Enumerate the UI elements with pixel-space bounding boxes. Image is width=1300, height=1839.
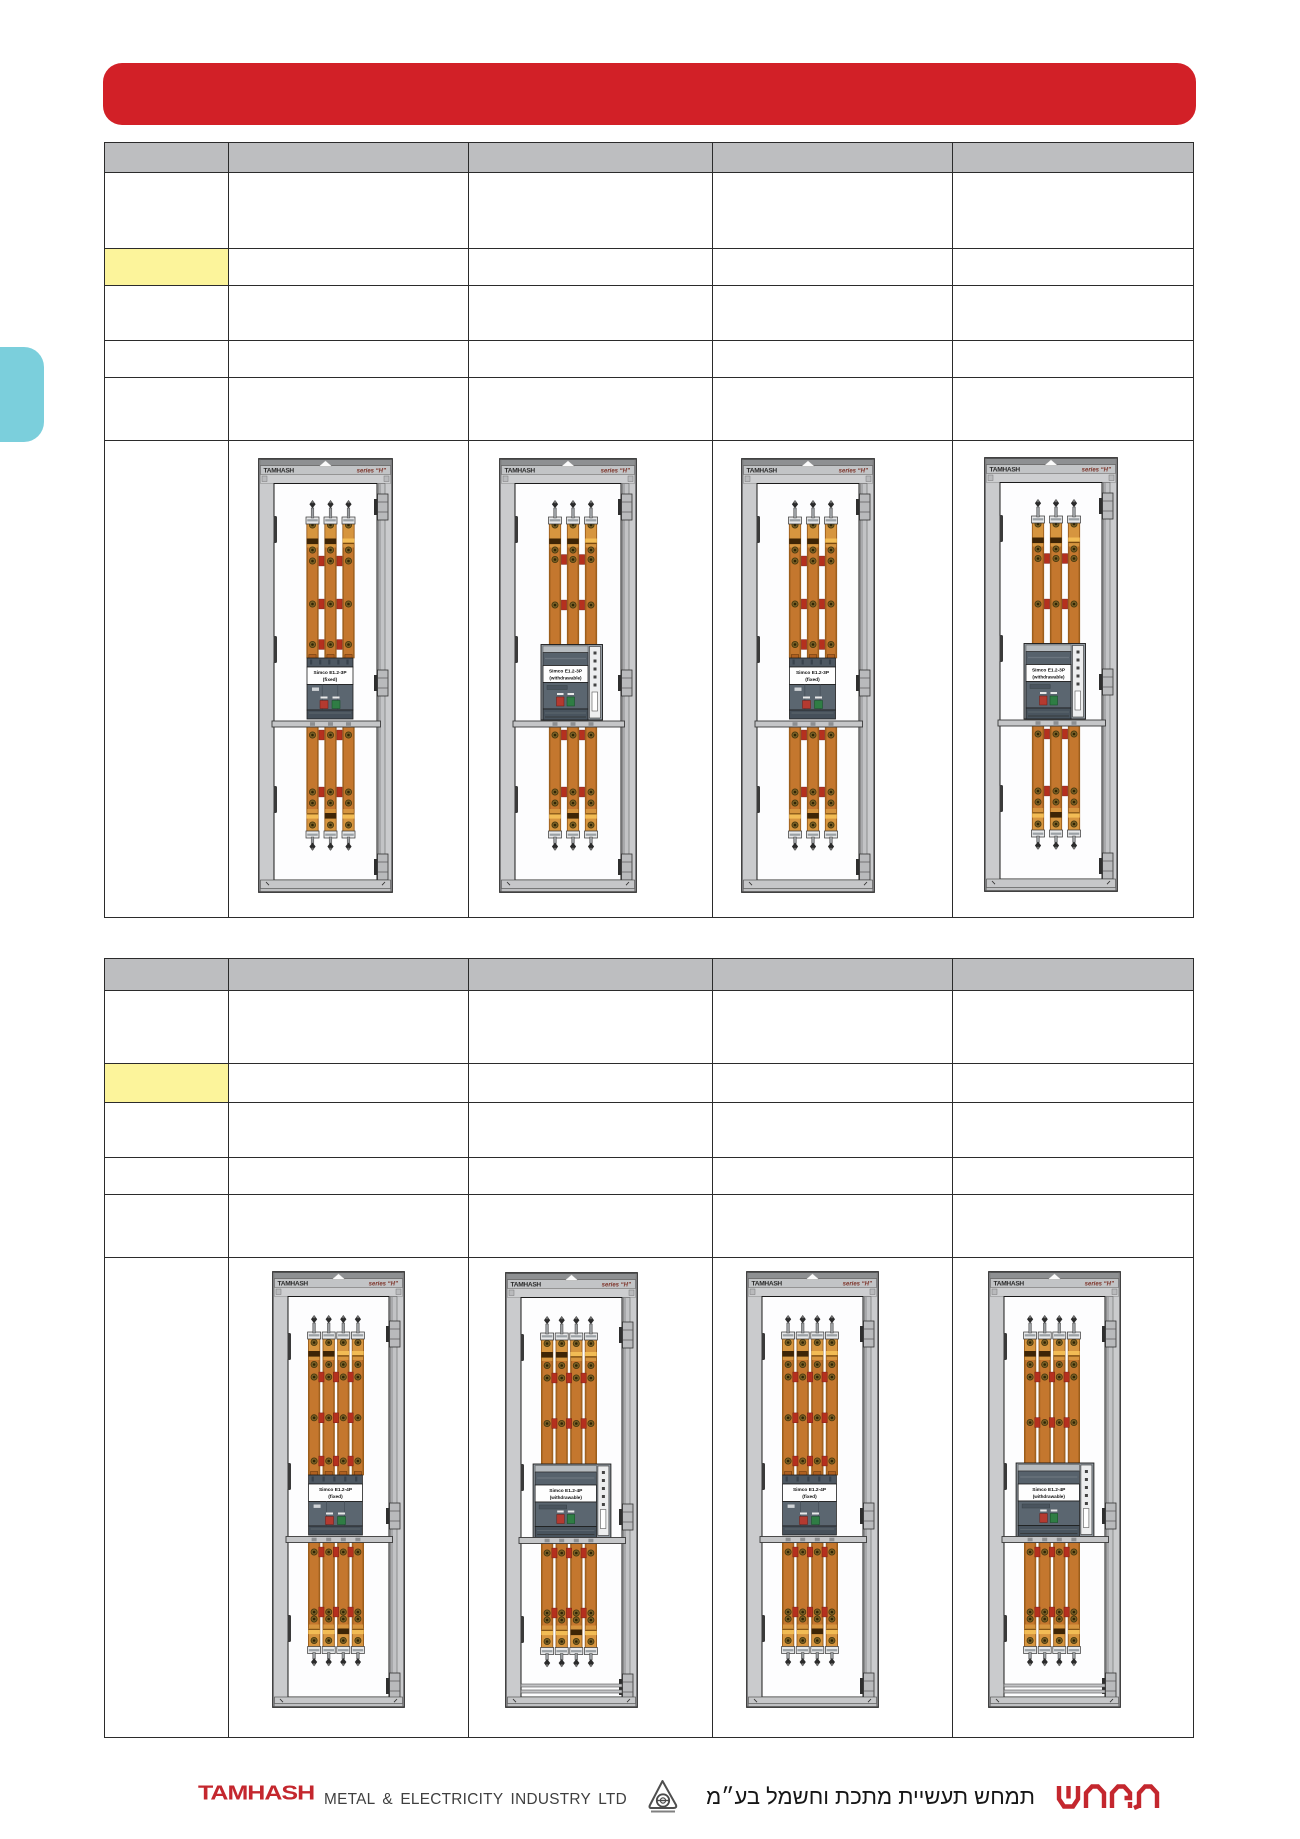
svg-text:series “H”: series “H” <box>1082 467 1111 473</box>
svg-text:(fixed): (fixed) <box>328 1494 343 1500</box>
svg-text:Simco E1.2-4P: Simco E1.2-4P <box>549 1488 583 1494</box>
svg-text:series “H”: series “H” <box>839 468 868 474</box>
svg-text:TAMHASH: TAMHASH <box>994 1281 1025 1288</box>
svg-text:TAMHASH: TAMHASH <box>747 468 778 475</box>
svg-text:Simco E1.2-3P: Simco E1.2-3P <box>313 670 347 676</box>
svg-text:Simco E1.2-3P: Simco E1.2-3P <box>549 669 583 675</box>
svg-text:(withdrawable): (withdrawable) <box>1032 674 1065 679</box>
svg-text:series “H”: series “H” <box>601 468 630 474</box>
svg-text:TAMHASH: TAMHASH <box>990 467 1021 474</box>
svg-text:series “H”: series “H” <box>1085 1281 1114 1287</box>
svg-text:TAMHASH: TAMHASH <box>511 1282 542 1289</box>
svg-text:(fixed): (fixed) <box>802 1494 817 1500</box>
svg-text:series “H”: series “H” <box>602 1282 631 1288</box>
svg-text:Simco E1.2-4P: Simco E1.2-4P <box>793 1487 827 1493</box>
svg-text:(fixed): (fixed) <box>805 677 820 683</box>
svg-text:TAMHASH: TAMHASH <box>264 468 295 475</box>
svg-text:Simco E1.2-3P: Simco E1.2-3P <box>796 670 830 676</box>
svg-text:Simco E1.2-4P: Simco E1.2-4P <box>1032 1487 1066 1493</box>
svg-text:Simco E1.2-4P: Simco E1.2-4P <box>319 1487 353 1493</box>
svg-text:TAMHASH: TAMHASH <box>505 468 536 475</box>
svg-text:series “H”: series “H” <box>843 1281 872 1287</box>
svg-text:Simco E1.2-3P: Simco E1.2-3P <box>1032 668 1066 674</box>
svg-text:(withdrawable): (withdrawable) <box>1033 1494 1066 1499</box>
svg-text:TAMHASH: TAMHASH <box>278 1281 309 1288</box>
svg-text:(withdrawable): (withdrawable) <box>550 1495 583 1500</box>
svg-text:(fixed): (fixed) <box>323 677 338 683</box>
svg-text:(withdrawable): (withdrawable) <box>549 675 582 680</box>
svg-text:series “H”: series “H” <box>357 468 386 474</box>
svg-text:TAMHASH: TAMHASH <box>752 1281 783 1288</box>
svg-text:series “H”: series “H” <box>369 1281 398 1287</box>
